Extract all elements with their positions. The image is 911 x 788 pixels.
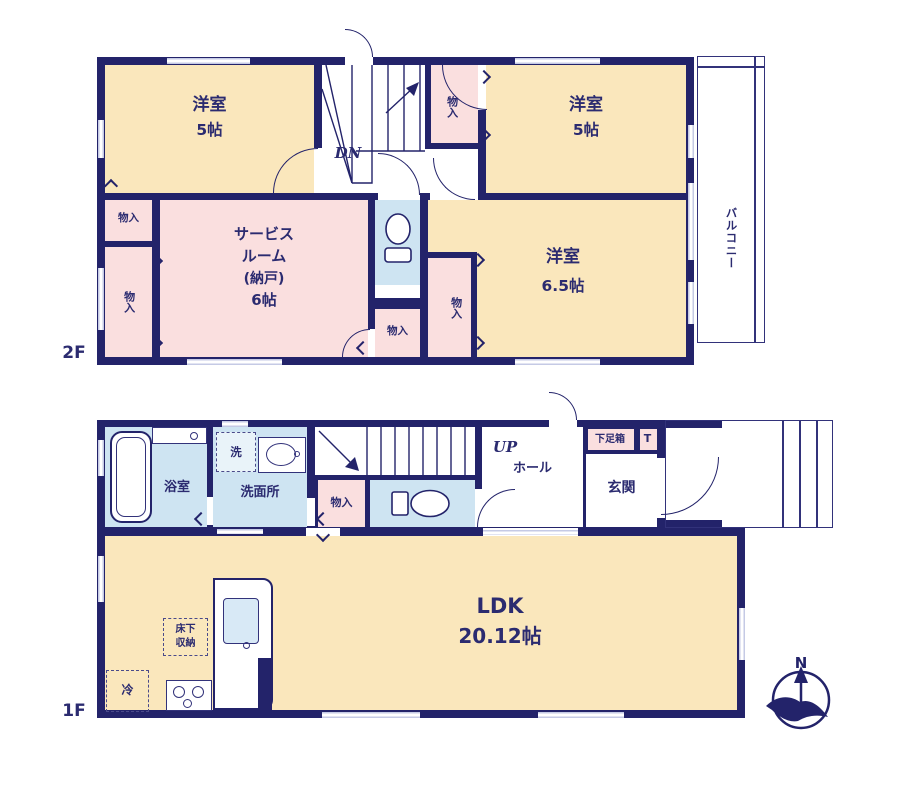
shoe-cabinet-label: 下足箱	[586, 429, 634, 449]
window	[167, 58, 250, 64]
floorplan-canvas: 2F バルコニー	[0, 0, 911, 788]
closet-1f-label: 物入	[318, 496, 365, 511]
door-arc-exterior	[345, 29, 373, 57]
window	[688, 183, 694, 217]
service-room-line: サービス	[160, 224, 368, 246]
window	[739, 608, 745, 660]
door-gap	[307, 498, 315, 526]
service-room-line: (納戸)	[160, 268, 368, 290]
refrigerator-label: 冷	[106, 682, 149, 700]
sink	[258, 437, 306, 473]
ldk-size: 20.12帖	[380, 624, 620, 648]
window	[98, 120, 104, 158]
window	[98, 440, 104, 476]
room-2f-west-name: 洋室	[105, 94, 314, 116]
washroom-label: 洗面所	[213, 484, 307, 502]
closet-2f-south-label: 物入	[375, 325, 420, 339]
floor-1f-label: 1F	[56, 700, 92, 722]
underfloor-storage-line: 床下	[163, 622, 208, 636]
window	[515, 359, 600, 365]
washing-machine-label: 洗	[216, 444, 256, 460]
room-2f-southeast-name: 洋室	[440, 246, 686, 268]
toilet-icon-2f	[380, 212, 416, 270]
room-2f-east-name: 洋室	[486, 94, 686, 116]
window	[688, 125, 694, 158]
compass-icon: N	[758, 654, 844, 740]
porch-step-line	[782, 421, 784, 527]
faucet-icon	[243, 642, 250, 649]
stairs-2f-label: DN	[326, 144, 370, 164]
closet-2f-northwest-label: 物入	[105, 212, 152, 226]
closet-2f-top-label: 物入	[431, 75, 472, 139]
threshold	[483, 530, 578, 535]
service-room-label: サービス ルーム (納戸) 6帖	[160, 224, 368, 312]
room-2f-west-size: 5帖	[105, 120, 314, 140]
entrance-label: 玄関	[586, 478, 657, 498]
bathroom-label: 浴室	[147, 479, 207, 497]
balcony-label: バルコニー	[703, 168, 759, 308]
hall-label: ホール	[482, 460, 583, 478]
kitchen-wall-stub	[258, 658, 272, 710]
toilet-icon-1f	[390, 485, 456, 522]
window	[98, 556, 104, 602]
faucet-icon	[294, 451, 300, 457]
bathtub-rim	[116, 437, 146, 517]
closet-2f-west-label: 物入	[105, 272, 152, 332]
door-arc-exterior	[549, 392, 577, 420]
burner-icon	[192, 686, 204, 698]
window	[515, 58, 600, 64]
stairs-1f	[315, 427, 475, 475]
door-gap	[549, 420, 577, 428]
porch-step-line	[799, 421, 801, 527]
service-room-line: ルーム	[160, 246, 368, 268]
stairs-arrow	[406, 82, 419, 96]
underfloor-storage-label: 床下 収納	[163, 622, 208, 650]
window	[98, 268, 104, 330]
bathtub	[110, 431, 152, 523]
porch-step-line	[816, 421, 818, 527]
window	[322, 712, 420, 718]
bath-counter	[152, 427, 207, 444]
faucet-icon	[190, 432, 198, 440]
floor-2f-label: 2F	[56, 342, 92, 364]
stairs-1f-label: UP	[484, 438, 526, 458]
porch-wall-stub	[666, 421, 722, 428]
toilet-2f-shelf	[375, 285, 420, 298]
underfloor-storage-line: 収納	[163, 636, 208, 650]
ldk-name: LDK	[380, 594, 620, 620]
window	[538, 712, 624, 718]
service-room-line: 6帖	[160, 290, 368, 312]
room-2f-east-size: 5帖	[486, 120, 686, 140]
sink-basin	[266, 443, 296, 466]
window	[688, 282, 694, 324]
stove	[166, 680, 212, 711]
closet-2f-east-label: 物入	[434, 278, 477, 338]
kitchen-sink	[223, 598, 259, 644]
door-gap	[345, 57, 373, 65]
window	[688, 216, 694, 260]
shoe-cabinet-t-label: T	[638, 429, 657, 449]
porch-wall-stub	[666, 520, 722, 527]
threshold	[217, 529, 263, 534]
window	[187, 359, 282, 365]
burner-icon	[173, 686, 185, 698]
compass-north-label: N	[795, 654, 808, 672]
burner-icon	[183, 699, 192, 708]
window	[222, 421, 248, 427]
